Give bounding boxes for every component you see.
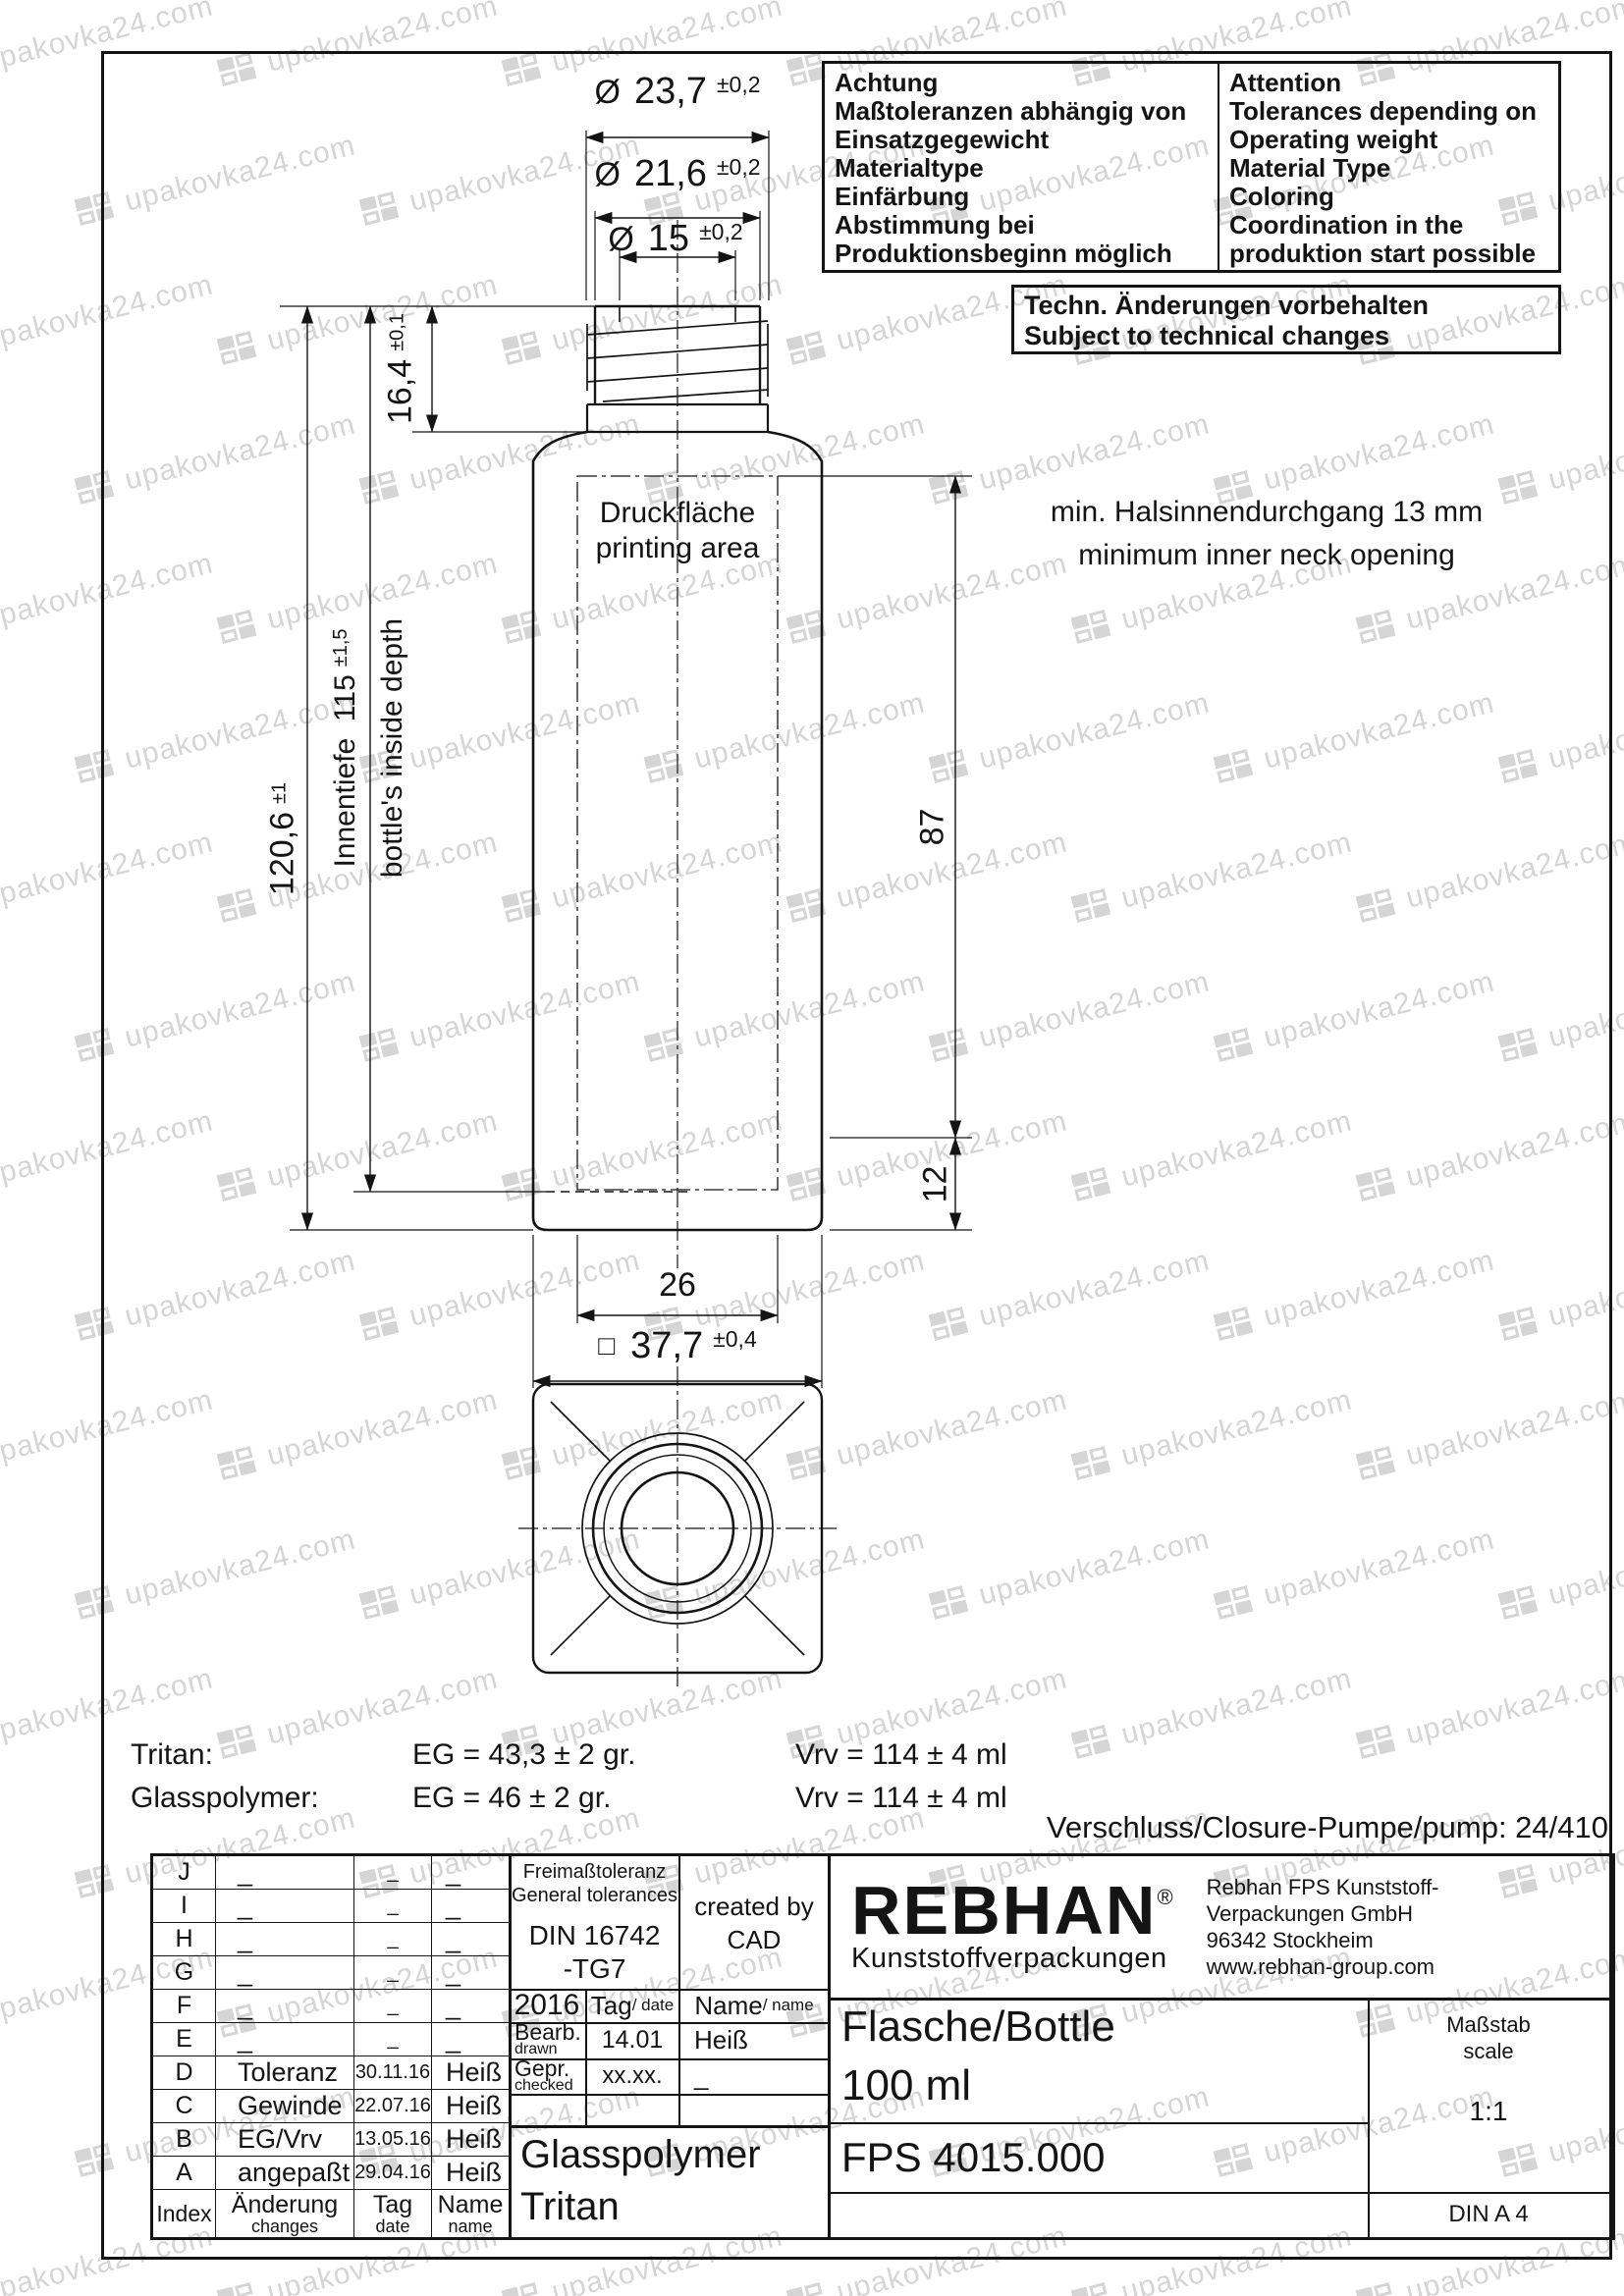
dim-tolerance: ±0,4: [713, 1326, 757, 1352]
revision-row: F___: [153, 1990, 509, 2023]
revision-index: D: [153, 2056, 216, 2089]
dim-tolerance: ±1,5: [330, 628, 352, 667]
revision-date: 30.11.16: [354, 2056, 432, 2089]
footer-date: Tag date: [354, 2190, 432, 2237]
tolerance-standard-2: -TG7: [564, 1952, 626, 1986]
scale-cell: Maßstab scale 1:1: [1368, 1998, 1609, 2192]
rebhan-logo: REBHAN: [851, 1872, 1157, 1949]
neck-opening-de: min. Halsinnendurchgang 13 mm: [1021, 491, 1512, 534]
dim-tolerance: ±1: [269, 782, 291, 804]
dim-tolerance: ±0,2: [699, 219, 743, 244]
general-tolerances-cell: Freimaßtoleranz General tolerances DIN 1…: [511, 1860, 678, 1986]
part-name-line2: 100 ml: [841, 2056, 971, 2115]
footer-date-de: Tag: [373, 2192, 412, 2217]
year-cell: 2016: [509, 1989, 585, 2022]
revision-change: _: [216, 1890, 354, 1922]
scale-label-de: Maßstab: [1446, 2011, 1531, 2038]
address-line: Rebhan FPS Kunststoff-: [1207, 1874, 1439, 1900]
attention-de-line: Maßtoleranzen abhängig von: [835, 97, 1208, 126]
attention-de-line: Abstimmung bei: [835, 211, 1208, 240]
dim-body-width: □37,7±0,4: [548, 1325, 807, 1367]
attention-en-line: produktion start possible: [1229, 240, 1537, 268]
printing-area-label: Druckfläche printing area: [568, 496, 787, 566]
material-label: Tritan:: [131, 1738, 412, 1772]
scale-label-en: scale: [1463, 2038, 1513, 2064]
checked-en: checked: [514, 2078, 573, 2093]
attention-en-line: Coloring: [1229, 183, 1537, 211]
revision-change: _: [216, 1956, 354, 1989]
revision-name: Heiß: [432, 2123, 509, 2156]
technical-changes-box: Techn. Änderungen vorbehalten Subject to…: [1011, 285, 1561, 354]
tolerance-standard: DIN 16742: [529, 1919, 661, 1952]
eg-value: EG = 43,3 ± 2 gr.: [412, 1738, 795, 1772]
company-logo: REBHAN® Kunststoffverpackungen: [851, 1880, 1173, 1975]
drawn-de: Bearb.: [514, 2022, 581, 2042]
revision-row: CGewinde22.07.16Heiß: [153, 2090, 509, 2123]
company-address: Rebhan FPS Kunststoff- Verpackungen GmbH…: [1207, 1874, 1439, 1980]
dim-tolerance: ±0,2: [717, 154, 761, 180]
tech-changes-de: Techn. Änderungen vorbehalten: [1024, 291, 1548, 321]
revision-row: E___: [153, 2023, 509, 2056]
part-name-line1: Flasche/Bottle: [841, 1998, 1115, 2056]
revision-name: _: [432, 1890, 509, 1922]
dim-inside-depth-de: Innentiefe 115±1,5: [329, 586, 362, 910]
revision-row: BEG/Vrv13.05.16Heiß: [153, 2123, 509, 2157]
printing-area-de: Druckfläche: [568, 496, 787, 531]
date-header-de: Tag: [591, 1991, 632, 2021]
material-line1: Glasspolymer: [520, 2129, 761, 2181]
revision-change: angepaßt: [216, 2157, 354, 2189]
square-symbol: □: [598, 1330, 615, 1361]
revision-index: J: [153, 1856, 216, 1889]
revision-date: _: [354, 1956, 432, 1989]
tolerance-en: General tolerances: [512, 1884, 677, 1907]
dim-body-height: 87: [914, 788, 952, 867]
revision-date: _: [354, 1990, 432, 2022]
weights-block: Tritan: EG = 43,3 ± 2 gr. Vrv = 114 ± 4 …: [131, 1734, 1007, 1820]
neck-opening-en: minimum inner neck opening: [1021, 534, 1512, 577]
created-by-line2: CAD: [728, 1923, 782, 1956]
weight-row: Tritan: EG = 43,3 ± 2 gr. Vrv = 114 ± 4 …: [131, 1734, 1007, 1777]
revision-row: H___: [153, 1923, 509, 1956]
revision-name: Heiß: [432, 2090, 509, 2122]
revision-date: _: [354, 1923, 432, 1955]
vrv-value: Vrv = 114 ± 4 ml: [795, 1738, 1007, 1772]
footer-changes: Änderung changes: [216, 2190, 354, 2237]
company-cell: REBHAN® Kunststoffverpackungen Rebhan FP…: [828, 1856, 1609, 1998]
part-number-cell: FPS 4015.000: [828, 2122, 1368, 2192]
checked-name-cell: _: [680, 2058, 828, 2094]
material-line2: Tritan: [520, 2181, 620, 2233]
technical-drawing-page: upakovka24.comupakovka24.comupakovka24.c…: [0, 0, 1624, 2296]
tech-changes-en: Subject to technical changes: [1024, 321, 1548, 351]
revision-date: 22.07.16: [354, 2090, 432, 2122]
dim-value: 16,4: [382, 359, 419, 424]
revision-index: E: [153, 2023, 216, 2056]
sheet-format-cell: DIN A 4: [1368, 2192, 1609, 2237]
revision-index: G: [153, 1956, 216, 1989]
dim-value: 23,7: [634, 71, 707, 112]
revision-row: I___: [153, 1890, 509, 1923]
revision-name: _: [432, 1856, 509, 1889]
attention-de-line: Materialtype: [835, 154, 1208, 183]
diameter-symbol: Ø: [608, 221, 633, 258]
revision-change: Gewinde: [216, 2090, 354, 2122]
revision-change: _: [216, 1856, 354, 1889]
footer-changes-de: Änderung: [232, 2192, 338, 2217]
dim-value: 120,6: [264, 812, 301, 895]
revision-change: Toleranz: [216, 2056, 354, 2089]
revision-change: _: [216, 1990, 354, 2022]
dim-value: 15: [648, 218, 689, 259]
address-line: 96342 Stockheim: [1207, 1927, 1439, 1953]
attention-english-column: Attention Tolerances depending on Operat…: [1219, 64, 1546, 270]
material-label: Glasspolymer:: [131, 1782, 412, 1815]
footer-name-de: Name: [438, 2192, 504, 2217]
dim-value: 12: [917, 1166, 954, 1203]
name-header-en: / name: [763, 1996, 814, 2015]
revision-change: EG/Vrv: [216, 2123, 354, 2156]
revision-date: 13.05.16: [354, 2123, 432, 2156]
attention-german-column: Achtung Maßtoleranzen abhängig von Einsa…: [825, 64, 1219, 270]
revision-table: J___I___H___G___F___E___DToleranz30.11.1…: [153, 1856, 509, 2190]
attention-de-line: Einfärbung: [835, 183, 1208, 211]
dim-tolerance: ±0,2: [717, 72, 761, 97]
dim-inside-depth-en: bottle's inside depth: [376, 586, 409, 910]
revision-date: _: [354, 1856, 432, 1889]
attention-box: Achtung Maßtoleranzen abhängig von Einsa…: [822, 61, 1561, 273]
tolerance-de: Freimaßtoleranz: [523, 1860, 667, 1884]
revision-index: A: [153, 2157, 216, 2189]
revision-date: _: [354, 2023, 432, 2056]
drawn-label-cell: Bearb. drawn: [509, 2022, 585, 2058]
footer-name-en: name: [448, 2217, 492, 2236]
revision-index: F: [153, 1990, 216, 2022]
date-header-cell: Tag/ date: [586, 1989, 678, 2022]
logo-subtitle: Kunststoffverpackungen: [851, 1943, 1173, 1975]
dim-label: Innentiefe: [329, 738, 361, 868]
attention-de-line: Einsatzgegewicht: [835, 126, 1208, 154]
dim-value: 26: [659, 1266, 696, 1304]
scale-value: 1:1: [1470, 2096, 1508, 2127]
diameter-symbol: Ø: [594, 74, 620, 111]
revision-row: Aangepaßt29.04.16Heiß: [153, 2157, 509, 2190]
materials-cell: Glasspolymer Tritan: [509, 2129, 828, 2233]
revision-name: _: [432, 1923, 509, 1955]
date-header-en: / date: [632, 1996, 675, 2015]
revision-name: Heiß: [432, 2056, 509, 2089]
revision-index: I: [153, 1890, 216, 1922]
checked-label-cell: Gepr. checked: [509, 2058, 585, 2094]
footer-date-en: date: [375, 2217, 409, 2236]
registered-mark: ®: [1157, 1885, 1172, 1909]
name-header-cell: Name/ name: [680, 1989, 828, 2022]
footer-changes-en: changes: [251, 2217, 318, 2236]
created-by-cell: created by CAD: [680, 1856, 828, 1989]
dim-print-width: 26: [638, 1266, 717, 1305]
drawn-en: drawn: [514, 2042, 558, 2056]
revision-name: _: [432, 1956, 509, 1989]
attention-en-line: Material Type: [1229, 154, 1537, 183]
revision-row: J___: [153, 1856, 509, 1890]
checked-date-cell: xx.xx.: [586, 2058, 678, 2094]
revision-table-footer: Index Änderung changes Tag date Name nam…: [153, 2190, 509, 2237]
footer-index: Index: [153, 2190, 216, 2237]
dim-value: 37,7: [630, 1325, 703, 1366]
dim-base-height: 12: [917, 1146, 955, 1224]
dim-value: 87: [914, 809, 951, 846]
attention-en-line: Attention: [1229, 69, 1537, 97]
dim-inner-diameter: Ø15±0,2: [558, 218, 793, 260]
dim-value: 21,6: [634, 153, 707, 194]
closure-note: Verschluss/Closure-Pumpe/pump: 24/410: [785, 1810, 1608, 1845]
created-by-line1: created by: [694, 1890, 813, 1923]
revision-name: Heiß: [432, 2157, 509, 2189]
address-line: Verpackungen GmbH: [1207, 1900, 1439, 1927]
revision-index: C: [153, 2090, 216, 2122]
revision-index: B: [153, 2123, 216, 2156]
address-line: www.rebhan-group.com: [1207, 1953, 1439, 1980]
footer-name: Name name: [432, 2190, 509, 2237]
revision-index: H: [153, 1923, 216, 1955]
dim-mid-diameter: Ø21,6±0,2: [560, 153, 795, 195]
revision-name: _: [432, 2023, 509, 2056]
printing-area-en: printing area: [568, 531, 787, 566]
attention-de-line: Achtung: [835, 69, 1208, 97]
drawn-date-cell: 14.01: [586, 2022, 678, 2058]
revision-date: 29.04.16: [354, 2157, 432, 2189]
revision-row: G___: [153, 1956, 509, 1990]
revision-change: _: [216, 1923, 354, 1955]
revision-date: _: [354, 1890, 432, 1922]
diameter-symbol: Ø: [594, 156, 620, 193]
dim-value: 115: [329, 674, 361, 721]
dim-total-height: 120,6±1: [264, 741, 302, 937]
attention-en-line: Tolerances depending on: [1229, 97, 1537, 126]
name-header-de: Name: [694, 1991, 762, 2021]
dim-tolerance: ±0,1: [387, 313, 408, 351]
attention-de-line: Produktionsbeginn möglich: [835, 240, 1208, 268]
revision-name: _: [432, 1990, 509, 2022]
part-name-cell: Flasche/Bottle 100 ml: [828, 1998, 1368, 2122]
eg-value: EG = 46 ± 2 gr.: [412, 1782, 795, 1815]
dim-outer-diameter: Ø23,7±0,2: [560, 71, 795, 113]
attention-en-line: Coordination in the: [1229, 211, 1537, 240]
drawn-name-cell: Heiß: [680, 2022, 828, 2058]
dim-neck-height: 16,4±0,1: [382, 271, 420, 467]
checked-de: Gepr.: [514, 2058, 569, 2078]
title-block: J___I___H___G___F___E___DToleranz30.11.1…: [150, 1853, 1615, 2240]
revision-change: _: [216, 2023, 354, 2056]
neck-opening-note: min. Halsinnendurchgang 13 mm minimum in…: [1021, 491, 1512, 577]
revision-row: DToleranz30.11.16Heiß: [153, 2056, 509, 2090]
attention-en-line: Operating weight: [1229, 126, 1537, 154]
dim-label: bottle's inside depth: [376, 618, 408, 878]
